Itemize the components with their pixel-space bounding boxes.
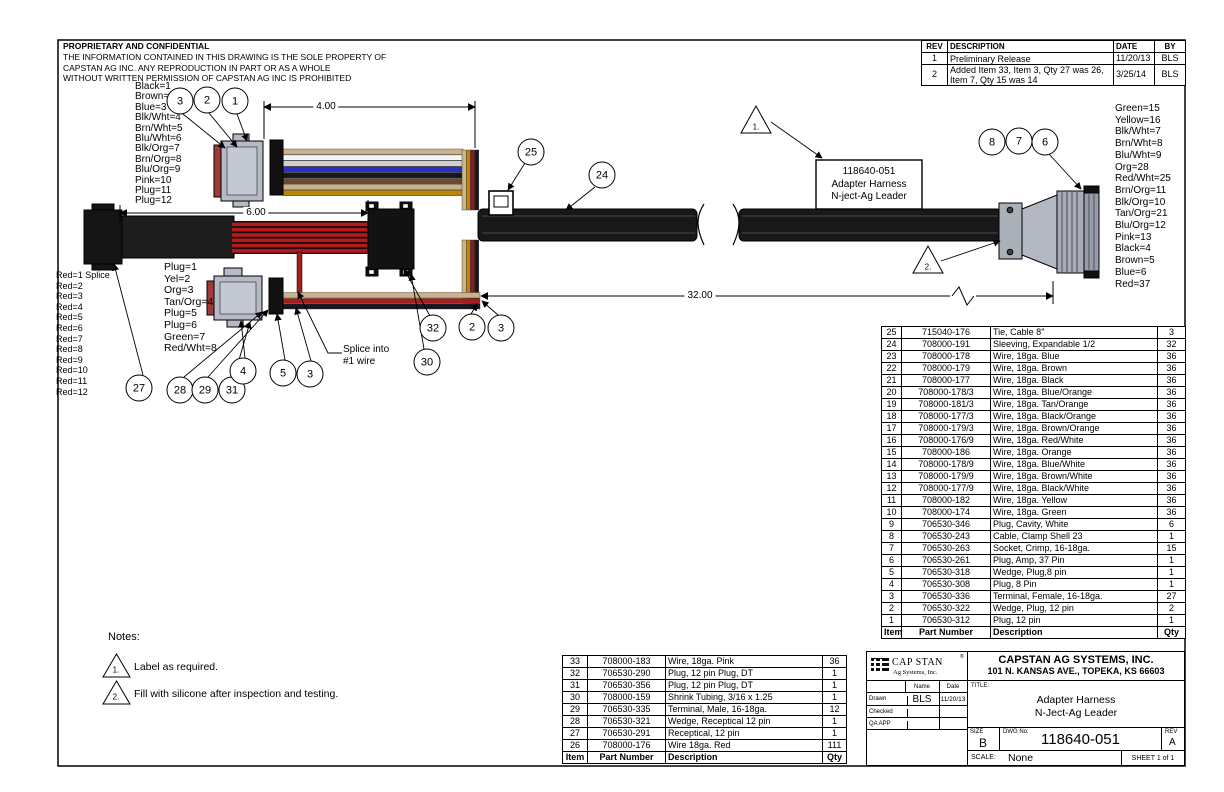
table-cell: Terminal, Female, 16-18ga. [991,591,1158,603]
table-cell: 15 [882,447,902,459]
table-cell: 708000-191 [902,339,991,351]
checked-label: Checked [867,709,908,718]
table-cell: Plug, 12 pin Plug, DT [666,680,823,692]
table-cell: 5 [882,567,902,579]
table-row: 6706530-261Plug, Amp, 37 Pin1 [882,555,1186,567]
table-cell: Wire, 18ga. Blue/White [991,459,1158,471]
rev-label: REV [1165,729,1177,735]
table-row: 17708000-179/3Wire, 18ga. Brown/Orange36 [882,423,1186,435]
table-cell: 33 [563,656,588,668]
table-cell: 1 [823,680,847,692]
wire-label: Red=5 [56,312,110,323]
top-connector-graphic [214,134,283,207]
logo-subtext: Ag Systems, Inc. [893,669,937,676]
balloon-item-2: 2 [459,314,486,341]
id-label-line: N-ject-Ag Leader [816,191,922,204]
id-label-text: 118640-051Adapter HarnessN-ject-Ag Leade… [816,166,922,204]
table-cell: 31 [563,680,588,692]
table-cell: 36 [1158,363,1186,375]
dimension-32: 32.00 [684,290,715,301]
table-cell: 708000-159 [588,692,666,704]
wire-label: Plug=1 [164,262,217,274]
table-row: 30708000-159Shrink Tubing, 3/16 x 1.251 [563,692,847,704]
wire-label: Red=9 [56,355,110,366]
table-cell: 28 [563,716,588,728]
wire-label: Red=6 [56,323,110,334]
table-header-cell: DATE [1114,41,1155,53]
drawn-name: BLS [905,693,940,706]
table-cell: 36 [1158,375,1186,387]
table-row: 11708000-182Wire, 18ga. Yellow36 [882,495,1186,507]
table-cell: 36 [1158,447,1186,459]
table-cell: Wire, 18ga. Green [991,507,1158,519]
note-2-number: 2. [113,693,120,702]
note-1-text: Label as required. [134,661,218,673]
table-cell: 36 [1158,351,1186,363]
splice-note-line: Splice into [343,344,389,356]
balloon-item-25: 25 [518,139,545,166]
table-row: 12708000-177/9Wire, 18ga. Black/White36 [882,483,1186,495]
scale-cell: SCALE: None [968,751,1122,765]
note-2-text: Fill with silicone after inspection and … [134,688,338,700]
table-cell: 708000-176/9 [902,435,991,447]
table-cell: Wedge, Plug, 12 pin [991,603,1158,615]
table-cell: 36 [1158,459,1186,471]
name-column-header: Name [905,681,940,692]
table-cell: 14 [882,459,902,471]
table-cell: 1 [1158,615,1186,627]
cable-tie-square [489,191,513,215]
bom-main-footer-row: ItemPart NumberDescriptionQty [882,627,1186,639]
table-cell: 708000-178/3 [902,387,991,399]
left-connector-graphic [84,204,234,270]
table-cell: 29 [563,704,588,716]
table-row: 31706530-356Plug, 12 pin Plug, DT1 [563,680,847,692]
table-cell: 36 [1158,507,1186,519]
table-cell: Wire, 18ga. Brown/Orange [991,423,1158,435]
table-cell: 708000-178 [902,351,991,363]
table-cell: 32 [1158,339,1186,351]
table-cell: 111 [823,740,847,752]
logo-registered-mark: ® [960,654,964,660]
title-cell: TITLE: Adapter Harness N-Ject-Ag Leader [968,681,1184,728]
table-cell: 27 [1158,591,1186,603]
table-row: 26708000-176Wire 18ga. Red111 [563,740,847,752]
table-cell: 1 [1158,567,1186,579]
table-header-cell: Description [666,752,823,764]
table-cell: 20 [882,387,902,399]
balloon-item-29: 29 [192,377,219,404]
table-row: 19708000-181/3Wire, 18ga. Tan/Orange36 [882,399,1186,411]
table-cell: Plug, Amp, 37 Pin [991,555,1158,567]
company-cell: CAPSTAN AG SYSTEMS, INC. 101 N. KANSAS A… [968,652,1184,681]
wire-label: Blk/Org=10 [1115,197,1171,209]
table-cell: BLS [1155,65,1186,86]
table-cell: Wire, 18ga. Pink [666,656,823,668]
notes-heading: Notes: [108,631,140,643]
wire-label: Red=12 [56,387,110,398]
table-cell: 6 [1158,519,1186,531]
drawn-label: Drawn [867,696,908,706]
balloon-item-8: 8 [979,129,1006,156]
wire-label: Red=4 [56,302,110,313]
company-address: 101 N. KANSAS AVE., TOPEKA, KS 66603 [968,666,1184,676]
balloon-item-7: 7 [1006,128,1033,155]
signature-region: Name Date Drawn BLS 11/20/13 Checked QA … [867,681,968,765]
table-cell: 21 [882,375,902,387]
table-row: 9706530-346Plug, Cavity, White6 [882,519,1186,531]
table-cell: 1 [823,668,847,680]
balloon-item-28: 28 [167,377,194,404]
table-row: 25715040-176Tie, Cable 8"3 [882,327,1186,339]
table-row: 23708000-178Wire, 18ga. Blue36 [882,351,1186,363]
table-cell: Added Item 33, Item 3, Qty 27 was 26, It… [948,65,1114,86]
table-row: 13708000-179/9Wire, 18ga. Brown/White36 [882,471,1186,483]
wire-label: Pink=13 [1115,232,1171,244]
table-header-cell: BY [1155,41,1186,53]
table-cell: Wire, 18ga. Blue/Orange [991,387,1158,399]
rev-cell: REV A [1162,728,1184,751]
qa-row: QA APP [867,718,968,730]
table-cell: 27 [563,728,588,740]
table-cell: 16 [882,435,902,447]
table-cell: 36 [1158,387,1186,399]
table-cell: Wire, 18ga. Blue [991,351,1158,363]
right-connector-graphic [999,186,1099,278]
table-cell: Wire, 18ga. Tan/Orange [991,399,1158,411]
table-row: 2Added Item 33, Item 3, Qty 27 was 26, I… [922,65,1186,86]
table-header-cell: REV [922,41,948,53]
proprietary-title: PROPRIETARY AND CONFIDENTIAL [63,41,209,51]
table-header-cell: Part Number [902,627,991,639]
bottom-wire-bundle [283,293,480,310]
balloon-item-24: 24 [589,162,616,189]
balloon-item-27: 27 [126,375,153,402]
table-cell: 1 [1158,531,1186,543]
table-cell: 1 [823,728,847,740]
size-value: B [979,736,987,750]
table-cell: 25 [882,327,902,339]
table-cell: 36 [1158,435,1186,447]
table-cell: 1 [823,692,847,704]
table-cell: 11 [882,495,902,507]
table-cell: Wire 18ga. Red [666,740,823,752]
logo-cell: CAP STAN ® Ag Systems, Inc. [867,652,968,681]
table-cell: 24 [882,339,902,351]
table-header-cell: Description [991,627,1158,639]
table-cell: Cable, Clamp Shell 23 [991,531,1158,543]
table-cell: 708000-177 [902,375,991,387]
table-header-cell: Part Number [588,752,666,764]
note-1-number: 1. [113,666,120,675]
table-cell: 706530-356 [588,680,666,692]
table-cell: 22 [882,363,902,375]
flag-1-number: 1. [753,123,760,132]
wire-label: Red=7 [56,334,110,345]
table-cell: Terminal, Male, 16-18ga. [666,704,823,716]
table-row: 10708000-174Wire, 18ga. Green36 [882,507,1186,519]
size-dwg-rev-row: SIZE B DWG No: 118640-051 REV A [968,728,1184,751]
table-cell: 708000-182 [902,495,991,507]
splice-note: Splice into#1 wire [343,344,389,367]
scale-label: SCALE: [971,754,996,761]
table-cell: 36 [1158,495,1186,507]
table-cell: Wire, 18ga. Red/White [991,435,1158,447]
wire-label: Red/Wht=25 [1115,173,1171,185]
table-cell: Wire, 18ga. Orange [991,447,1158,459]
table-cell: 36 [823,656,847,668]
dwg-label: DWG No: [1003,729,1029,735]
title-block: CAP STAN ® Ag Systems, Inc. CAPSTAN AG S… [866,651,1185,766]
wire-label: Red=8 [56,344,110,355]
table-cell: 36 [1158,471,1186,483]
cable-sleeve [478,204,1002,245]
revision-header-row: REVDESCRIPTIONDATEBY [922,41,1186,53]
title-label: TITLE: [971,683,989,689]
table-cell: 1 [1158,579,1186,591]
table-cell: Wire, 18ga. Yellow [991,495,1158,507]
table-cell: 706530-346 [902,519,991,531]
proprietary-line: WITHOUT WRITTEN PERMISSION OF CAPSTAN AG… [63,73,386,84]
table-cell: Sleeving, Expandable 1/2 [991,339,1158,351]
table-row: 14708000-178/9Wire, 18ga. Blue/White36 [882,459,1186,471]
table-cell: Plug, 12 pin [991,615,1158,627]
table-row: 18708000-177/3Wire, 18ga. Black/Orange36 [882,411,1186,423]
wire-label: Black=4 [1115,243,1171,255]
wire-label: Green=15 [1115,103,1171,115]
drawing-sheet: PROPRIETARY AND CONFIDENTIAL THE INFORMA… [0,0,1224,792]
table-cell: 708000-176 [588,740,666,752]
wire-label: Yellow=16 [1115,115,1171,127]
table-cell: 706530-263 [902,543,991,555]
balloon-item-1: 1 [222,88,249,115]
table-cell: 2 [1158,603,1186,615]
drawn-row: Drawn BLS 11/20/13 [867,693,968,706]
size-label: SIZE [970,729,983,735]
table-row: 21708000-177Wire, 18ga. Black36 [882,375,1186,387]
table-row: 8706530-243Cable, Clamp Shell 231 [882,531,1186,543]
wire-label: Blk/Wht=7 [1115,126,1171,138]
table-cell: 708000-177/3 [902,411,991,423]
table-cell: 17 [882,423,902,435]
wire-label: Org=28 [1115,162,1171,174]
proprietary-text: THE INFORMATION CONTAINED IN THIS DRAWIN… [63,52,386,84]
table-cell: 706530-336 [902,591,991,603]
table-cell: 36 [1158,411,1186,423]
table-cell: Wire, 18ga. Brown/White [991,471,1158,483]
wire-label: Red=2 [56,281,110,292]
drawing-title-line1: Adapter Harness [968,694,1184,707]
table-row: 1706530-312Plug, 12 pin1 [882,615,1186,627]
table-cell: Plug, Cavity, White [991,519,1158,531]
table-cell: 26 [563,740,588,752]
wire-label: Brn/Org=11 [1115,185,1171,197]
table-row: 1Preliminary Release11/20/13BLS [922,53,1186,65]
table-cell: 2 [882,603,902,615]
table-header-cell: Qty [823,752,847,764]
table-cell: 706530-312 [902,615,991,627]
table-cell: 1 [922,53,948,65]
table-cell: Shrink Tubing, 3/16 x 1.25 [666,692,823,704]
date-column-header: Date [939,681,967,692]
table-row: 7706530-263Socket, Crimp, 16-18ga.15 [882,543,1186,555]
rev-value: A [1169,737,1176,748]
inline-receptacle-graphic [366,202,414,276]
signature-header-spacer [867,681,906,693]
qa-label: QA APP [867,721,908,730]
checked-row: Checked [867,706,968,718]
checked-name [905,706,940,718]
drawing-title-line2: N-Ject-Ag Leader [968,707,1184,720]
table-row: 4706530-308Plug, 8 Pin1 [882,579,1186,591]
qa-name [905,718,940,730]
wire-label: Blu/Org=12 [1115,220,1171,232]
table-cell: 708000-178/9 [902,459,991,471]
table-cell: Wire, 18ga. Black [991,375,1158,387]
table-cell: 7 [882,543,902,555]
table-row: 33708000-183Wire, 18ga. Pink36 [563,656,847,668]
wire-labels-plug: Plug=1Yel=2Org=3Tan/Org=4Plug=5Plug=6Gre… [164,262,217,355]
table-cell: 1 [1158,555,1186,567]
wire-label: Red=3 [56,291,110,302]
table-cell: Wedge, Receptical 12 pin [666,716,823,728]
sheet-cell: SHEET 1 of 1 [1122,751,1184,765]
table-cell: 36 [1158,399,1186,411]
balloon-item-3: 3 [167,88,194,115]
dimension-4: 4.00 [313,101,338,112]
logo-text: CAP STAN [892,657,943,668]
table-cell: Receptical, 12 pin [666,728,823,740]
wire-labels-right: Green=15Yellow=16Blk/Wht=7Brn/Wht=8Blu/W… [1115,103,1171,290]
proprietary-line: THE INFORMATION CONTAINED IN THIS DRAWIN… [63,52,386,63]
table-cell: 11/20/13 [1114,53,1155,65]
wire-label: Tan/Org=21 [1115,208,1171,220]
wire-label: Red=11 [56,376,110,387]
wire-label: Blue=6 [1115,267,1171,279]
wire-label: Red=37 [1115,279,1171,291]
table-cell: 3/25/14 [1114,65,1155,86]
table-cell: Wire, 18ga. Brown [991,363,1158,375]
table-row: 3706530-336Terminal, Female, 16-18ga.27 [882,591,1186,603]
table-row: 27706530-291Receptical, 12 pin1 [563,728,847,740]
bom-secondary-table: 33708000-183Wire, 18ga. Pink3632706530-2… [562,655,846,764]
table-cell: Tie, Cable 8" [991,327,1158,339]
table-cell: 19 [882,399,902,411]
table-cell: 36 [1158,483,1186,495]
table-row: 2706530-322Wedge, Plug, 12 pin2 [882,603,1186,615]
table-cell: 706530-318 [902,567,991,579]
bottom-connector-graphic [207,268,283,327]
table-cell: 23 [882,351,902,363]
company-name: CAPSTAN AG SYSTEMS, INC. [968,654,1184,666]
table-row: 28706530-321Wedge, Receptical 12 pin1 [563,716,847,728]
table-cell: 706530-322 [902,603,991,615]
table-cell: 708000-177/9 [902,483,991,495]
wire-label: Brn/Wht=8 [1115,138,1171,150]
table-cell: 706530-321 [588,716,666,728]
table-cell: 8 [882,531,902,543]
table-cell: 708000-174 [902,507,991,519]
scale-value: None [1008,752,1033,764]
table-cell: 706530-291 [588,728,666,740]
table-cell: 12 [882,483,902,495]
bom-main-table: 25715040-176Tie, Cable 8"324708000-191Sl… [881,326,1185,639]
balloon-item-3: 3 [488,315,515,342]
drawn-date: 11/20/13 [939,693,967,706]
table-cell: 706530-290 [588,668,666,680]
id-label-line: 118640-051 [816,166,922,179]
flag-2-number: 2. [925,263,932,272]
table-cell: 3 [1158,327,1186,339]
balloon-item-6: 6 [1032,129,1059,156]
table-cell: 6 [882,555,902,567]
table-cell: 706530-243 [902,531,991,543]
wire-labels-red: Red=1 SpliceRed=2Red=3Red=4Red=5Red=6Red… [56,270,110,397]
table-cell: 9 [882,519,902,531]
table-cell: Wedge, Plug,8 pin [991,567,1158,579]
table-cell: 32 [563,668,588,680]
balloon-item-32: 32 [420,315,447,342]
capstan-logo-icon [871,658,889,674]
table-cell: 13 [882,471,902,483]
table-header-cell: Item [882,627,902,639]
proprietary-line: CAPSTAN AG INC. ANY REPRODUCTION IN PART… [63,63,386,74]
size-cell: SIZE B [968,728,1000,751]
table-row: 22708000-179Wire, 18ga. Brown36 [882,363,1186,375]
id-label-line: Adapter Harness [816,179,922,192]
table-row: 15708000-186Wire, 18ga. Orange36 [882,447,1186,459]
table-cell: Preliminary Release [948,53,1114,65]
table-cell: 15 [1158,543,1186,555]
table-cell: 12 [823,704,847,716]
table-cell: 4 [882,579,902,591]
dimension-6: 6.00 [243,207,268,218]
table-cell: Plug, 12 pin Plug, DT [666,668,823,680]
table-row: 5706530-318Wedge, Plug,8 pin1 [882,567,1186,579]
wire-label: Red=1 Splice [56,270,110,281]
balloon-item-4: 4 [230,358,257,385]
table-cell: 708000-181/3 [902,399,991,411]
table-row: 16708000-176/9Wire, 18ga. Red/White36 [882,435,1186,447]
balloon-item-30: 30 [414,349,441,376]
table-cell: 30 [563,692,588,704]
table-cell: Wire, 18ga. Black/Orange [991,411,1158,423]
table-cell: 36 [1158,423,1186,435]
wire-label: Red=10 [56,365,110,376]
balloon-item-2: 2 [194,87,221,114]
table-cell: 2 [922,65,948,86]
table-cell: 708000-186 [902,447,991,459]
table-cell: 706530-261 [902,555,991,567]
table-cell: 708000-179 [902,363,991,375]
table-cell: Plug, 8 Pin [991,579,1158,591]
wire-label: Red/Wht=8 [164,343,217,355]
wire-label: Brown=5 [1115,255,1171,267]
table-row: 24708000-191Sleeving, Expandable 1/232 [882,339,1186,351]
dwg-cell: DWG No: 118640-051 [1000,728,1162,751]
table-cell: Wire, 18ga. Black/White [991,483,1158,495]
table-cell: 706530-335 [588,704,666,716]
table-cell: Socket, Crimp, 16-18ga. [991,543,1158,555]
table-header-cell: Qty [1158,627,1186,639]
table-cell: 708000-179/3 [902,423,991,435]
wire-label: Plug=6 [164,320,217,332]
table-cell: 715040-176 [902,327,991,339]
signature-header-row: Name Date [867,681,968,693]
table-cell: 18 [882,411,902,423]
bom-secondary-footer-row: ItemPart NumberDescriptionQty [563,752,847,764]
table-cell: BLS [1155,53,1186,65]
